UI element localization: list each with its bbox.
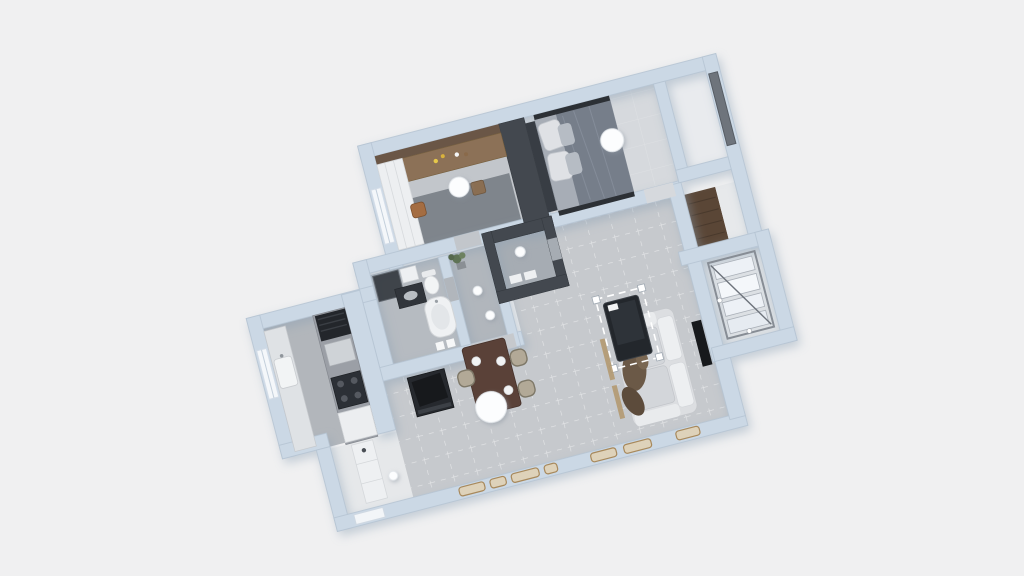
- selection-handle[interactable]: [637, 284, 646, 293]
- selection-handle[interactable]: [592, 296, 601, 305]
- orange-chair[interactable]: [410, 201, 427, 218]
- selection-handle[interactable]: [655, 353, 664, 362]
- floorplan-canvas: [0, 0, 1024, 576]
- desk-stool[interactable]: [470, 180, 486, 196]
- floorplan-render: [0, 0, 1024, 576]
